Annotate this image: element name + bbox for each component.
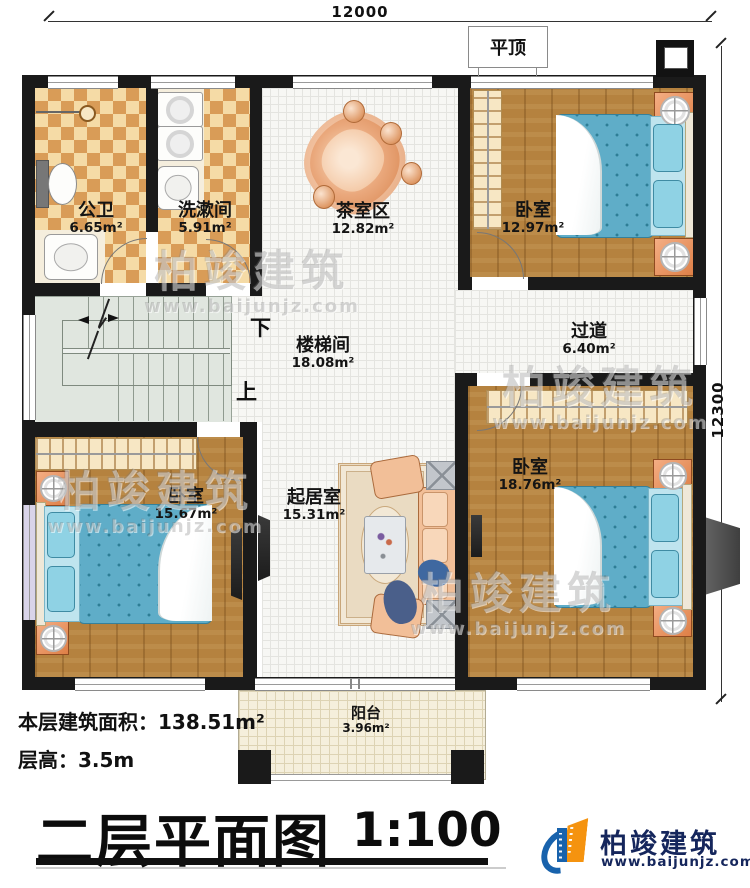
room-name: 茶室区 bbox=[332, 202, 395, 222]
stair-railing-outline bbox=[62, 320, 232, 386]
floor-height-line: 层高：3.5m bbox=[18, 744, 134, 773]
wall-living-bedroom-bl bbox=[243, 422, 257, 677]
room-area: 12.82m² bbox=[332, 222, 395, 237]
logo-building-icon bbox=[564, 818, 589, 862]
sofa-cushion bbox=[422, 528, 448, 563]
room-area: 6.40m² bbox=[562, 342, 615, 357]
room-label-tea-area: 茶室区 12.82m² bbox=[332, 202, 395, 237]
toilet-bowl bbox=[48, 163, 77, 205]
title-underline bbox=[36, 858, 488, 865]
tea-pouf bbox=[380, 122, 402, 145]
washing-machine bbox=[157, 92, 203, 127]
door-gap-bedroom-bottomleft bbox=[197, 422, 240, 437]
room-label-washroom: 洗漱间 5.91m² bbox=[178, 201, 232, 236]
wall-bath-wash bbox=[146, 88, 158, 232]
wardrobe bbox=[473, 90, 502, 230]
balcony-sliding-door bbox=[255, 678, 455, 691]
window bbox=[471, 76, 653, 89]
floor-area-value: 138.51m² bbox=[158, 710, 265, 734]
nightstand-lamp bbox=[660, 96, 690, 126]
nightstand-lamp bbox=[660, 242, 690, 272]
coffee-table bbox=[364, 516, 406, 574]
dimension-width-label: 12000 bbox=[320, 3, 400, 21]
room-label-bedroom-topright: 卧室 12.97m² bbox=[502, 201, 565, 236]
dimension-height-label: 12300 bbox=[709, 380, 729, 440]
logo-tower-icon bbox=[557, 828, 567, 862]
bed-pillow bbox=[651, 550, 679, 598]
window bbox=[293, 76, 432, 89]
watermark: 柏竣建筑 www.baijunjz.com bbox=[492, 366, 708, 435]
page-title: 二层平面图 bbox=[36, 796, 331, 878]
watermark: 柏竣建筑 www.baijunjz.com bbox=[144, 250, 360, 319]
room-name: 阳台 bbox=[342, 705, 389, 722]
room-name: 洗漱间 bbox=[178, 201, 232, 221]
chimney-flue bbox=[664, 47, 688, 69]
bed-headboard bbox=[682, 484, 692, 610]
washing-machine bbox=[157, 126, 203, 161]
sliding-door-divider bbox=[358, 678, 360, 689]
room-label-stairwell: 楼梯间 18.08m² bbox=[292, 336, 355, 371]
room-name: 过道 bbox=[562, 322, 615, 342]
room-area: 5.91m² bbox=[178, 221, 232, 236]
wardrobe bbox=[35, 438, 197, 470]
watermark-site: www.baijunjz.com bbox=[492, 411, 708, 435]
nightstand-lamp bbox=[659, 462, 687, 490]
bathroom-sink bbox=[44, 234, 98, 280]
stair-direction-arrow bbox=[78, 316, 89, 324]
dimension-tick bbox=[705, 10, 716, 21]
watermark-name: 柏竣建筑 bbox=[47, 470, 263, 515]
floor-height-value: 3.5m bbox=[78, 748, 134, 772]
towel-bar bbox=[36, 111, 82, 113]
towel-ring bbox=[79, 105, 96, 122]
room-name: 起居室 bbox=[283, 488, 346, 508]
watermark-name: 柏竣建筑 bbox=[492, 366, 708, 411]
stairs-up-label: 上 bbox=[236, 376, 257, 406]
tea-pouf bbox=[343, 100, 365, 123]
room-name: 卧室 bbox=[499, 458, 562, 478]
room-area: 12.97m² bbox=[502, 221, 565, 236]
tv-bedroom-bottomright bbox=[471, 515, 482, 557]
room-area: 18.08m² bbox=[292, 356, 355, 371]
room-name: 楼梯间 bbox=[292, 336, 355, 356]
wall-tea-bedroom bbox=[458, 88, 470, 290]
room-name: 卧室 bbox=[502, 201, 565, 221]
sofa-cushion bbox=[422, 492, 448, 527]
window bbox=[48, 76, 118, 89]
stair-direction-arrow bbox=[108, 314, 119, 322]
watermark-name: 柏竣建筑 bbox=[410, 572, 626, 617]
floor-plan-canvas: 12000 12300 平顶 bbox=[0, 0, 750, 888]
window bbox=[151, 76, 235, 89]
room-label-bedroom-bottomright: 卧室 18.76m² bbox=[499, 458, 562, 493]
watermark-site: www.baijunjz.com bbox=[144, 295, 360, 319]
dimension-line-top bbox=[48, 21, 712, 22]
floor-height-label: 层高： bbox=[18, 748, 78, 772]
bed-pillow bbox=[653, 124, 683, 172]
room-label-balcony: 阳台 3.96m² bbox=[342, 705, 389, 735]
balcony-railing bbox=[238, 774, 484, 781]
room-label-corridor: 过道 6.40m² bbox=[562, 322, 615, 357]
floor-area-label: 本层建筑面积： bbox=[18, 710, 158, 734]
dimension-line-right bbox=[721, 46, 722, 702]
floor-area-line: 本层建筑面积：138.51m² bbox=[18, 706, 265, 735]
dimension-tick bbox=[43, 10, 54, 21]
window-stairwell bbox=[23, 315, 36, 420]
nightstand-lamp bbox=[659, 607, 687, 635]
watermark-site: www.baijunjz.com bbox=[410, 617, 626, 641]
window-bedroom-bottomleft bbox=[23, 505, 36, 620]
window bbox=[75, 678, 205, 691]
flat-roof-label: 平顶 bbox=[468, 26, 548, 68]
room-area: 6.65m² bbox=[69, 221, 122, 236]
room-area: 3.96m² bbox=[342, 722, 389, 735]
room-label-bathroom: 公卫 6.65m² bbox=[69, 201, 122, 236]
watermark-site: www.baijunjz.com bbox=[47, 515, 263, 539]
side-table bbox=[426, 461, 458, 490]
bed-pillow bbox=[651, 494, 679, 542]
watermark: 柏竣建筑 www.baijunjz.com bbox=[410, 572, 626, 641]
window-corridor bbox=[694, 298, 707, 365]
nightstand-lamp bbox=[40, 625, 67, 652]
balcony-column bbox=[238, 750, 271, 784]
window bbox=[517, 678, 650, 691]
bed-pillow bbox=[47, 566, 75, 612]
tea-pouf bbox=[401, 162, 422, 185]
watermark: 柏竣建筑 www.baijunjz.com bbox=[47, 470, 263, 539]
room-area: 15.31m² bbox=[283, 508, 346, 523]
sliding-door-divider bbox=[350, 678, 352, 689]
room-name: 公卫 bbox=[69, 201, 122, 221]
balcony-column bbox=[451, 750, 484, 784]
brand-website: www.baijunjz.com bbox=[601, 854, 750, 870]
door-gap-bathroom bbox=[100, 283, 146, 296]
room-label-living-room: 起居室 15.31m² bbox=[283, 488, 346, 523]
bed-pillow bbox=[653, 180, 683, 228]
watermark-name: 柏竣建筑 bbox=[144, 250, 360, 295]
room-area: 18.76m² bbox=[499, 478, 562, 493]
drawing-scale: 1:100 bbox=[352, 803, 502, 858]
